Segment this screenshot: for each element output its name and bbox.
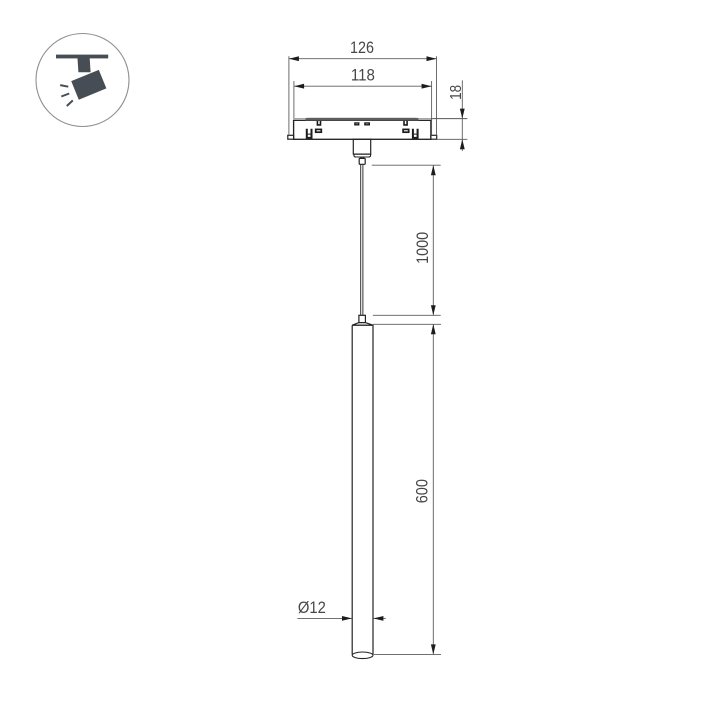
svg-text:18: 18 [448, 85, 465, 100]
svg-text:118: 118 [351, 65, 375, 84]
svg-text:1000: 1000 [414, 232, 432, 264]
svg-text:Ø12: Ø12 [298, 599, 326, 617]
svg-text:600: 600 [414, 479, 432, 503]
svg-text:126: 126 [350, 38, 374, 57]
